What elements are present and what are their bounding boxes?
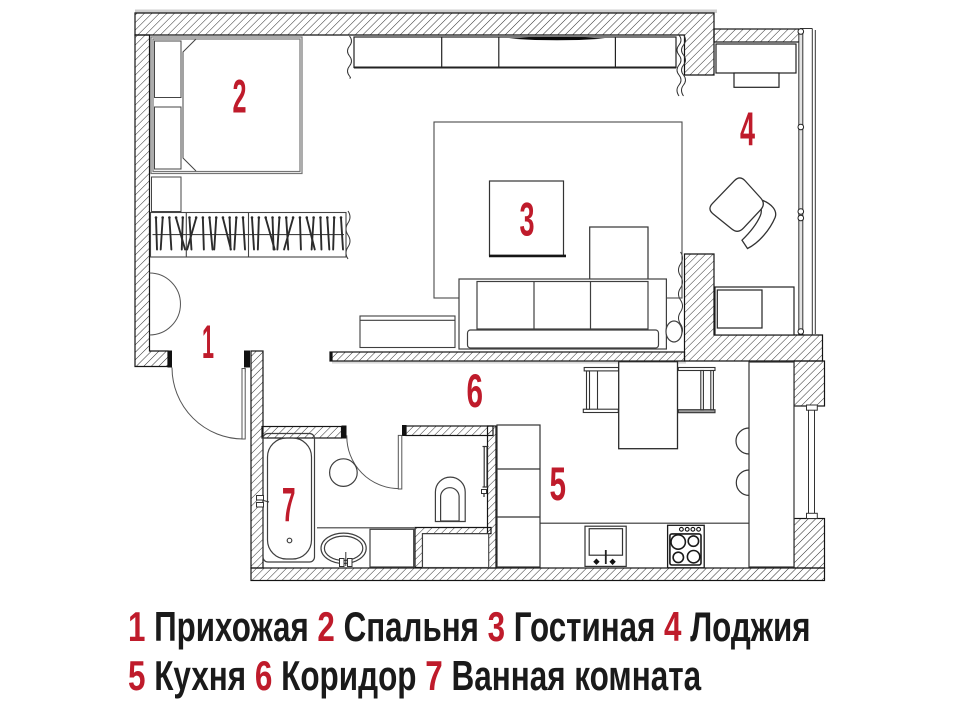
svg-text:4: 4: [740, 103, 755, 156]
svg-text:5: 5: [550, 458, 567, 511]
svg-text:3: 3: [520, 194, 535, 247]
svg-text:1: 1: [202, 316, 214, 369]
svg-text:6: 6: [467, 365, 484, 418]
svg-text:7: 7: [282, 479, 296, 533]
svg-text:2: 2: [233, 71, 247, 124]
